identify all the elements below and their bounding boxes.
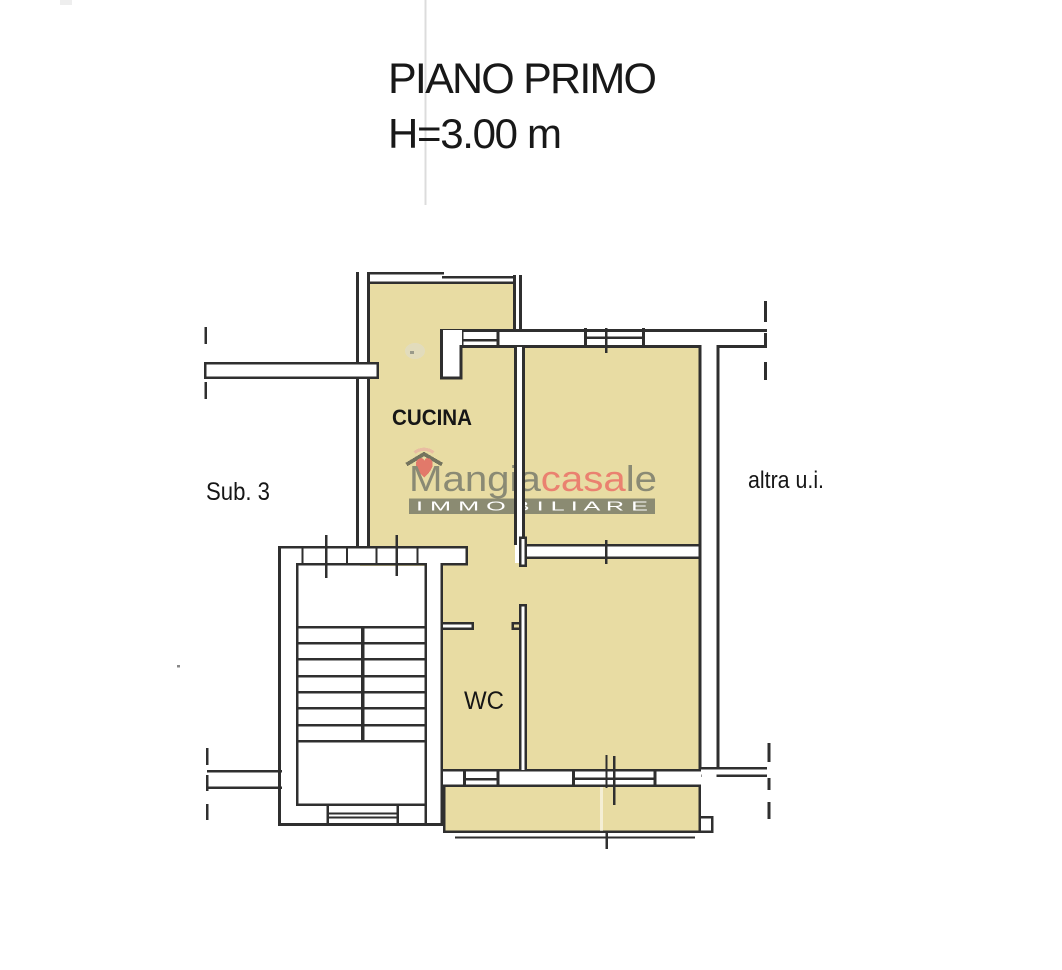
- svg-text:H=3.00 m: H=3.00 m: [388, 110, 562, 157]
- svg-text:WC: WC: [464, 687, 504, 715]
- svg-text:CUCINA: CUCINA: [392, 405, 472, 430]
- svg-text:altra u.i.: altra u.i.: [748, 467, 824, 494]
- svg-text:Sub. 3: Sub. 3: [206, 478, 270, 506]
- svg-text:PIANO PRIMO: PIANO PRIMO: [388, 55, 657, 103]
- svg-text:I M M O B I L I A R E: I M M O B I L I A R E: [416, 500, 648, 514]
- svg-text:Mangiacasale: Mangiacasale: [409, 458, 657, 499]
